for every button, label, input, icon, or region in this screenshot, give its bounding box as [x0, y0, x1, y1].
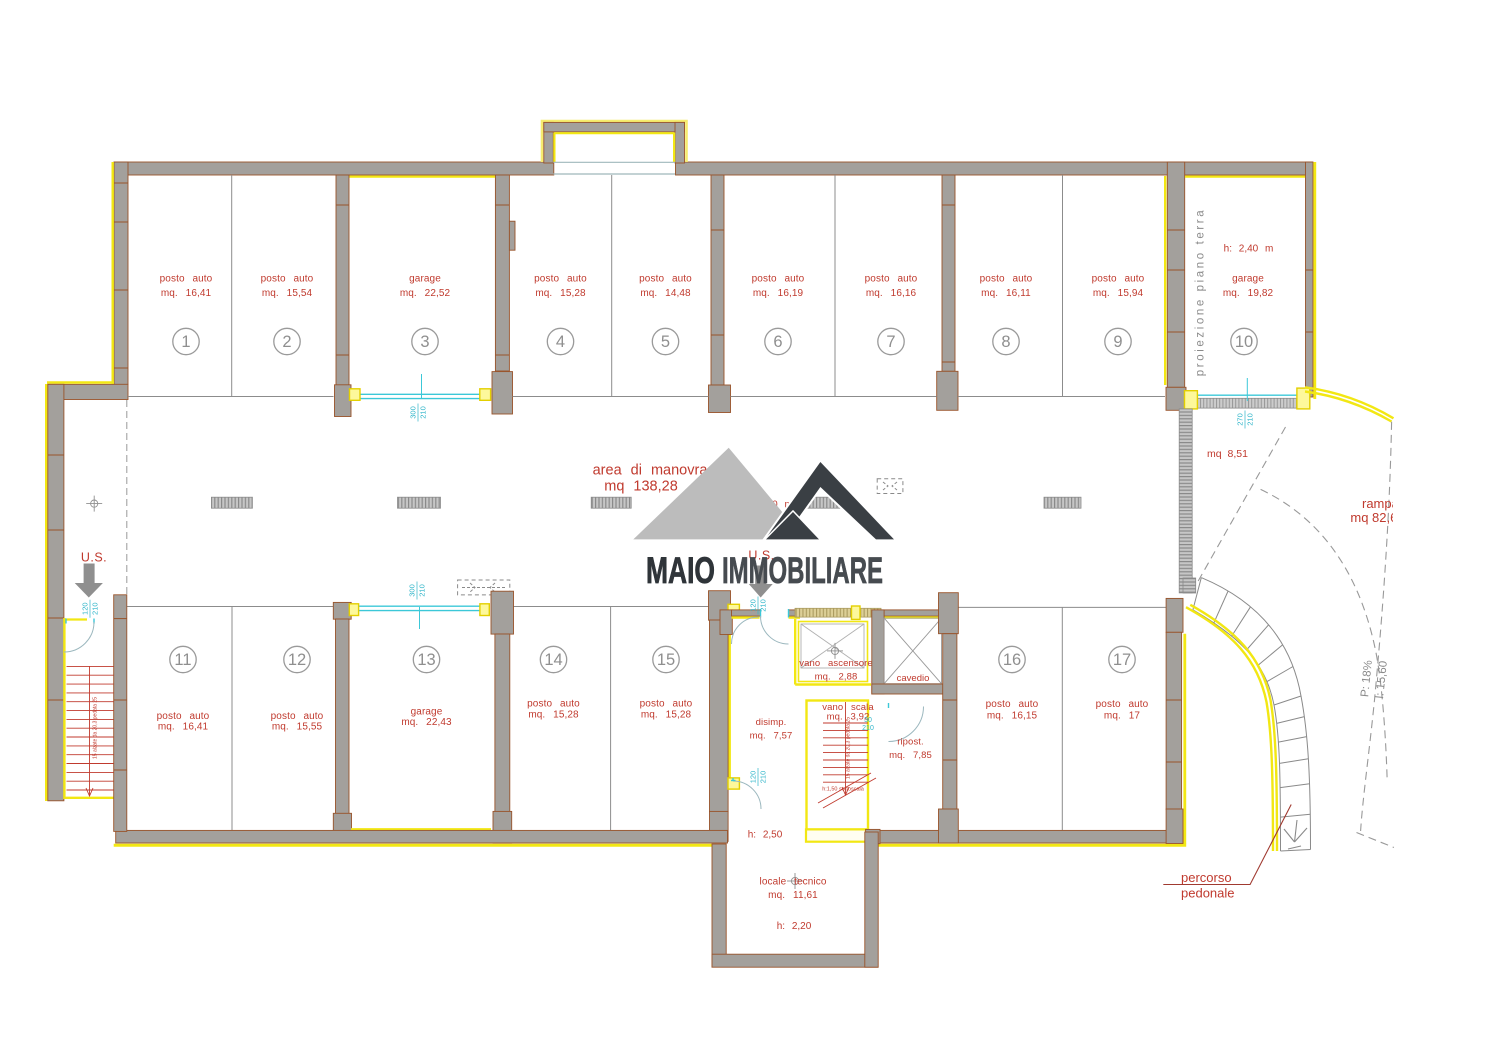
svg-text:mq. 16,11: mq. 16,11: [981, 288, 1031, 299]
svg-text:garage: garage: [409, 274, 441, 285]
svg-text:6: 6: [773, 333, 782, 351]
svg-text:210: 210: [91, 602, 100, 615]
svg-text:270: 270: [1236, 413, 1245, 426]
svg-text:mq. 15,55: mq. 15,55: [272, 722, 323, 733]
svg-text:30: 30: [864, 717, 872, 724]
svg-text:210: 210: [418, 584, 427, 597]
svg-text:mq. 22,43: mq. 22,43: [401, 717, 452, 728]
svg-text:percorso: percorso: [1181, 870, 1232, 885]
svg-text:posto auto: posto auto: [980, 274, 1033, 285]
svg-text:120: 120: [749, 599, 758, 612]
svg-text:mq. 15,28: mq. 15,28: [528, 710, 579, 721]
svg-text:posto auto: posto auto: [261, 274, 314, 285]
svg-text:garage: garage: [411, 707, 443, 718]
svg-text:posto auto: posto auto: [534, 274, 587, 285]
svg-text:disimp.: disimp.: [756, 717, 787, 728]
svg-text:300: 300: [408, 584, 417, 597]
svg-text:210: 210: [862, 725, 874, 732]
svg-text:proiezione piano terra: proiezione piano terra: [1195, 208, 1207, 376]
svg-text:5: 5: [661, 333, 670, 351]
svg-text:posto auto: posto auto: [1096, 699, 1149, 710]
svg-text:1: 1: [181, 333, 190, 351]
svg-text:garage: garage: [1232, 274, 1264, 285]
svg-text:mq. 16,41: mq. 16,41: [158, 722, 209, 733]
svg-text:mq. 16,15: mq. 16,15: [987, 711, 1038, 722]
svg-text:posto auto: posto auto: [639, 274, 692, 285]
svg-text:locale tecnico: locale tecnico: [760, 877, 827, 888]
svg-text:h: 2,50: h: 2,50: [748, 830, 783, 841]
svg-text:17: 17: [1113, 651, 1131, 669]
svg-text:300: 300: [409, 406, 418, 419]
svg-text:210: 210: [1246, 413, 1255, 426]
svg-text:mq. 16,41: mq. 16,41: [161, 288, 212, 299]
svg-text:posto auto: posto auto: [527, 699, 580, 710]
svg-text:210: 210: [759, 599, 768, 612]
svg-text:8: 8: [1001, 333, 1010, 351]
svg-text:h: 2,40 m: h: 2,40 m: [1224, 244, 1274, 255]
svg-text:cavedio: cavedio: [897, 673, 930, 684]
svg-text:120: 120: [81, 602, 90, 615]
svg-text:7: 7: [886, 333, 895, 351]
svg-text:posto auto: posto auto: [865, 274, 918, 285]
svg-text:210: 210: [759, 771, 768, 784]
svg-text:mq. 19,82: mq. 19,82: [1223, 288, 1274, 299]
svg-text:15 alzate da 20,3 pedata 25: 15 alzate da 20,3 pedata 25: [93, 697, 99, 759]
svg-text:posto auto: posto auto: [160, 274, 213, 285]
svg-text:h:1,50 sottoscala: h:1,50 sottoscala: [822, 787, 865, 793]
svg-text:posto auto: posto auto: [271, 711, 324, 722]
svg-text:mq. 16,16: mq. 16,16: [866, 288, 917, 299]
svg-text:mq. 7,85: mq. 7,85: [889, 750, 932, 761]
svg-text:posto auto: posto auto: [157, 711, 210, 722]
svg-text:mq. 2,88: mq. 2,88: [815, 672, 858, 683]
svg-text:14: 14: [544, 651, 562, 669]
svg-text:area di manovra: area di manovra: [593, 463, 709, 479]
svg-text:posto auto: posto auto: [752, 274, 805, 285]
svg-text:3: 3: [420, 333, 429, 351]
svg-text:mq. 7,57: mq. 7,57: [750, 731, 793, 742]
svg-text:15: 15: [657, 651, 675, 669]
svg-text:2: 2: [282, 333, 291, 351]
svg-text:15 alzate da 20,3 pedata 25: 15 alzate da 20,3 pedata 25: [846, 717, 852, 779]
svg-text:h: 2,20: h: 2,20: [777, 921, 812, 932]
svg-text:mq. 11,61: mq. 11,61: [768, 890, 818, 901]
svg-text:mq. 15,28: mq. 15,28: [535, 288, 586, 299]
svg-text:10: 10: [1235, 333, 1253, 351]
svg-text:mq. 15,94: mq. 15,94: [1093, 288, 1144, 299]
svg-text:mq. 17: mq. 17: [1104, 711, 1141, 722]
svg-text:MAIO: MAIO: [646, 549, 715, 591]
svg-text:mq. 16,19: mq. 16,19: [753, 288, 804, 299]
svg-text:pedonale: pedonale: [1181, 886, 1235, 901]
svg-text:120: 120: [749, 771, 758, 784]
svg-text:posto auto: posto auto: [1092, 274, 1145, 285]
svg-text:U.S.: U.S.: [81, 551, 107, 565]
svg-text:posto auto: posto auto: [640, 699, 693, 710]
svg-text:posto auto: posto auto: [986, 699, 1039, 710]
svg-text:4: 4: [556, 333, 565, 351]
svg-text:mq. 14,48: mq. 14,48: [640, 288, 691, 299]
svg-text:16: 16: [1003, 651, 1021, 669]
svg-text:mq. 15,54: mq. 15,54: [262, 288, 313, 299]
svg-text:13: 13: [417, 651, 435, 669]
svg-text:mq 138,28: mq 138,28: [604, 479, 678, 495]
svg-text:11: 11: [174, 651, 191, 669]
svg-text:210: 210: [419, 406, 428, 419]
svg-text:ripost.: ripost.: [897, 737, 924, 748]
svg-text:9: 9: [1113, 333, 1122, 351]
svg-text:mq. 15,28: mq. 15,28: [641, 710, 692, 721]
svg-text:mq 8,51: mq 8,51: [1207, 448, 1248, 460]
svg-text:vano ascensore: vano ascensore: [799, 658, 872, 669]
svg-text:mq. 22,52: mq. 22,52: [400, 288, 451, 299]
svg-text:IMMOBILIARE: IMMOBILIARE: [722, 549, 883, 591]
svg-text:12: 12: [288, 651, 306, 669]
